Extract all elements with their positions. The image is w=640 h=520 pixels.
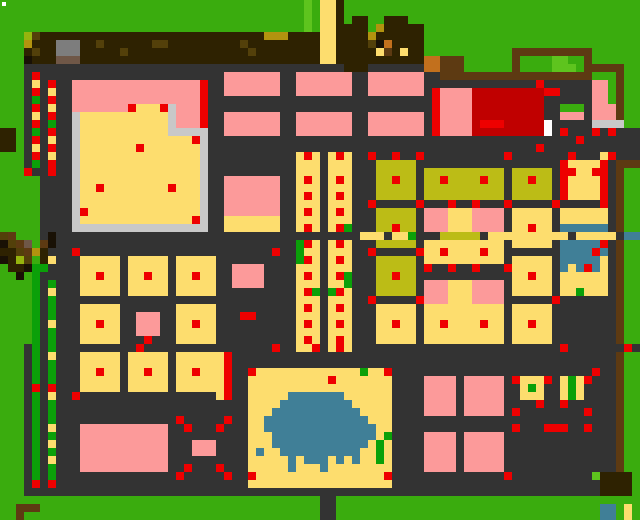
game-map-viewport	[0, 0, 640, 520]
park-map-canvas[interactable]	[0, 0, 640, 520]
